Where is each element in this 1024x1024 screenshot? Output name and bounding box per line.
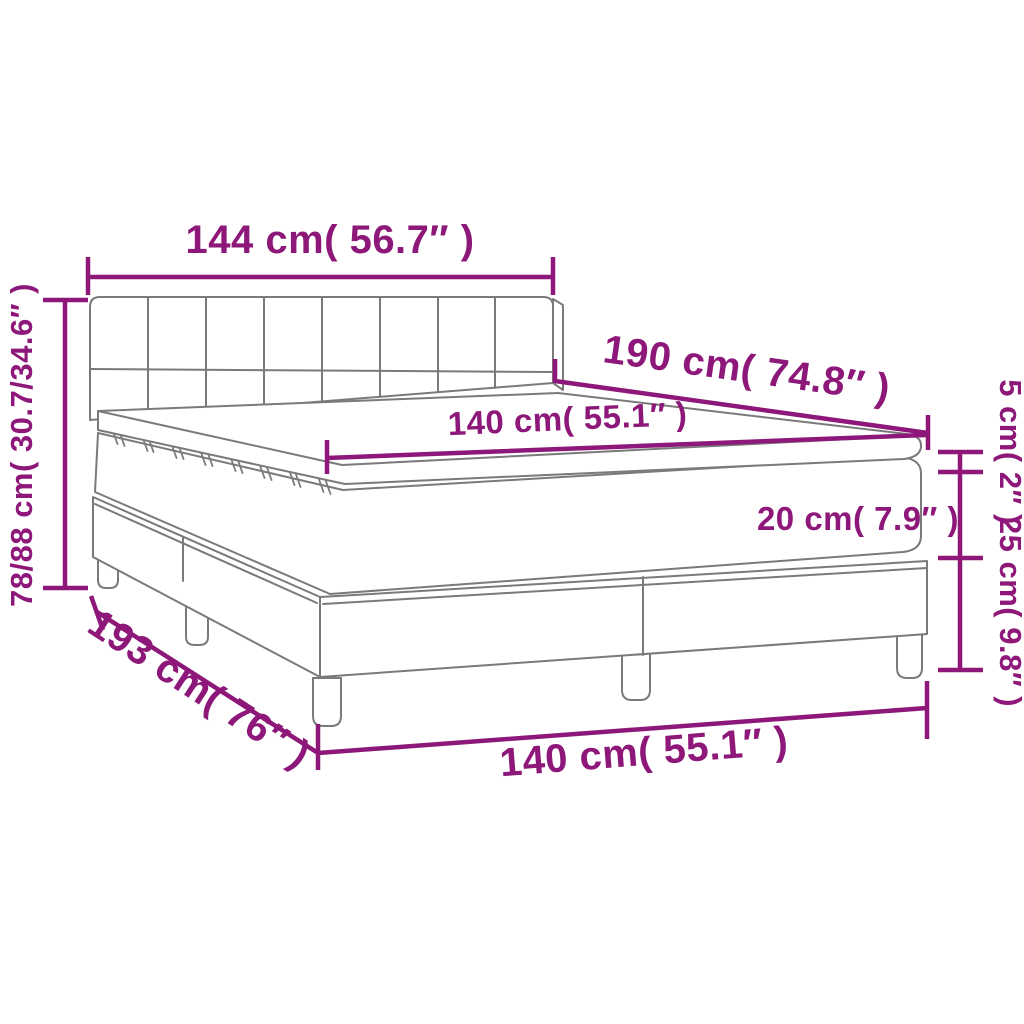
dim-headboard-width <box>88 257 553 295</box>
bed-leg <box>622 652 650 700</box>
bed-dimension-diagram: 144 cm( 56.7″ ) 78/88 cm( 30.7/34.6″ ) 1… <box>0 0 1024 1024</box>
dim-topper-height-label: 5 cm( 2″ ) <box>993 379 1024 525</box>
bed-leg <box>313 678 341 726</box>
dim-total-height <box>43 300 88 588</box>
dim-height-stack <box>938 452 983 670</box>
dim-total-height-label: 78/88 cm( 30.7/34.6″ ) <box>4 283 39 607</box>
diagram-canvas: 144 cm( 56.7″ ) 78/88 cm( 30.7/34.6″ ) 1… <box>0 0 1024 1024</box>
dim-base-height-label: 25 cm( 9.8″ ) <box>993 517 1024 707</box>
dim-mattress-height-label: 20 cm( 7.9″ ) <box>757 500 959 537</box>
bed-leg <box>897 634 922 678</box>
dim-headboard-width-label: 144 cm( 56.7″ ) <box>185 218 474 262</box>
